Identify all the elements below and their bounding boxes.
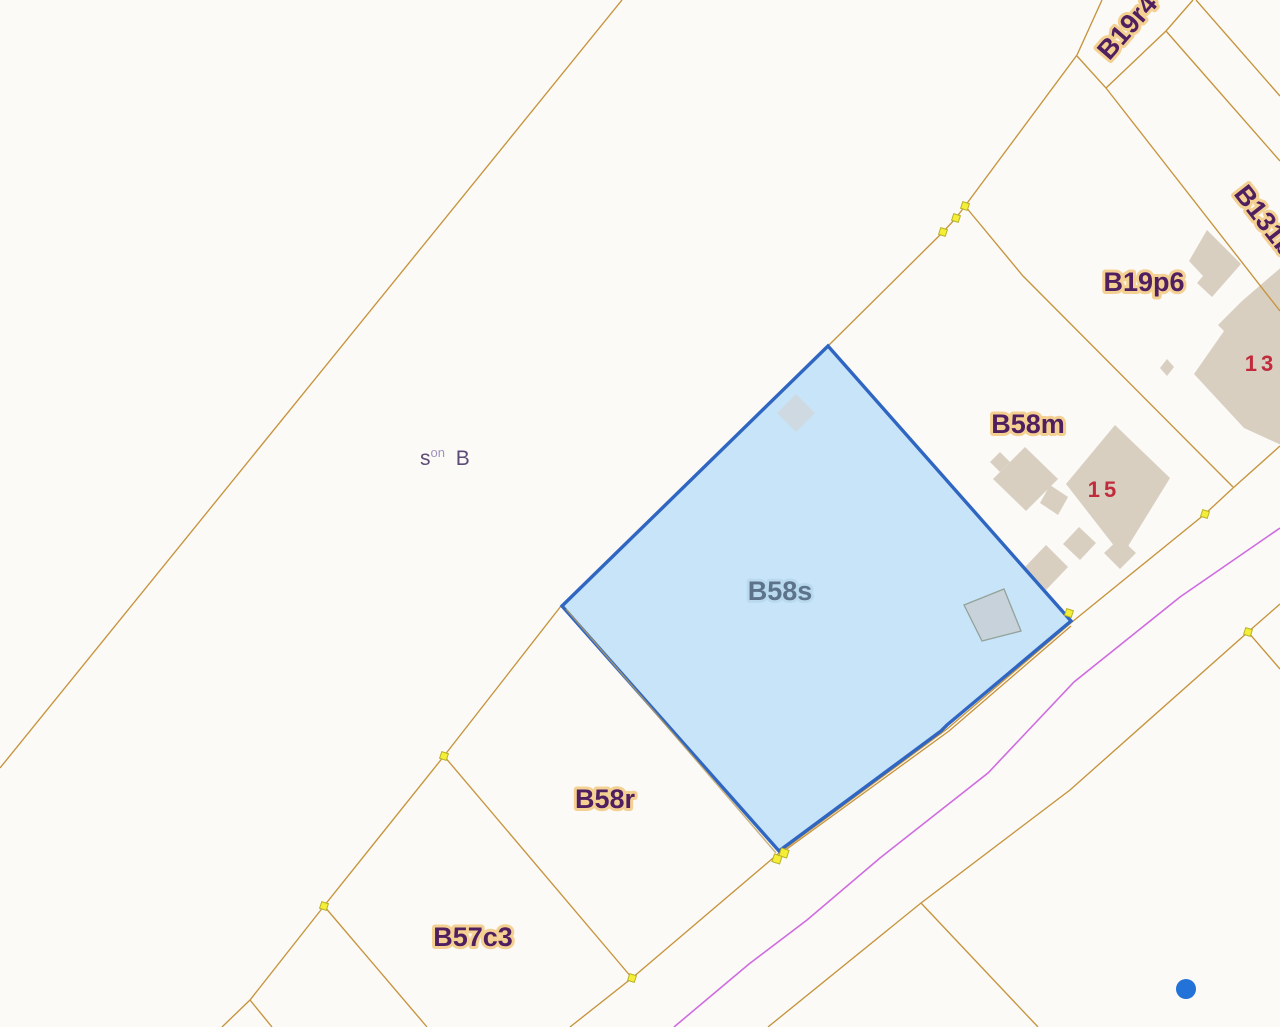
svg-text:B58s: B58s: [748, 576, 813, 606]
svg-text:B57c3: B57c3: [433, 922, 513, 952]
svg-text:B58r: B58r: [575, 784, 636, 814]
svg-text:B19p6: B19p6: [1103, 267, 1184, 297]
svg-text:15: 15: [1088, 477, 1120, 502]
svg-text:son B: son B: [420, 445, 470, 470]
svg-text:B131b: B131b: [1228, 179, 1280, 261]
svg-text:B58m: B58m: [991, 409, 1065, 439]
svg-text:13: 13: [1245, 351, 1277, 376]
svg-text:B19r4: B19r4: [1091, 0, 1163, 65]
